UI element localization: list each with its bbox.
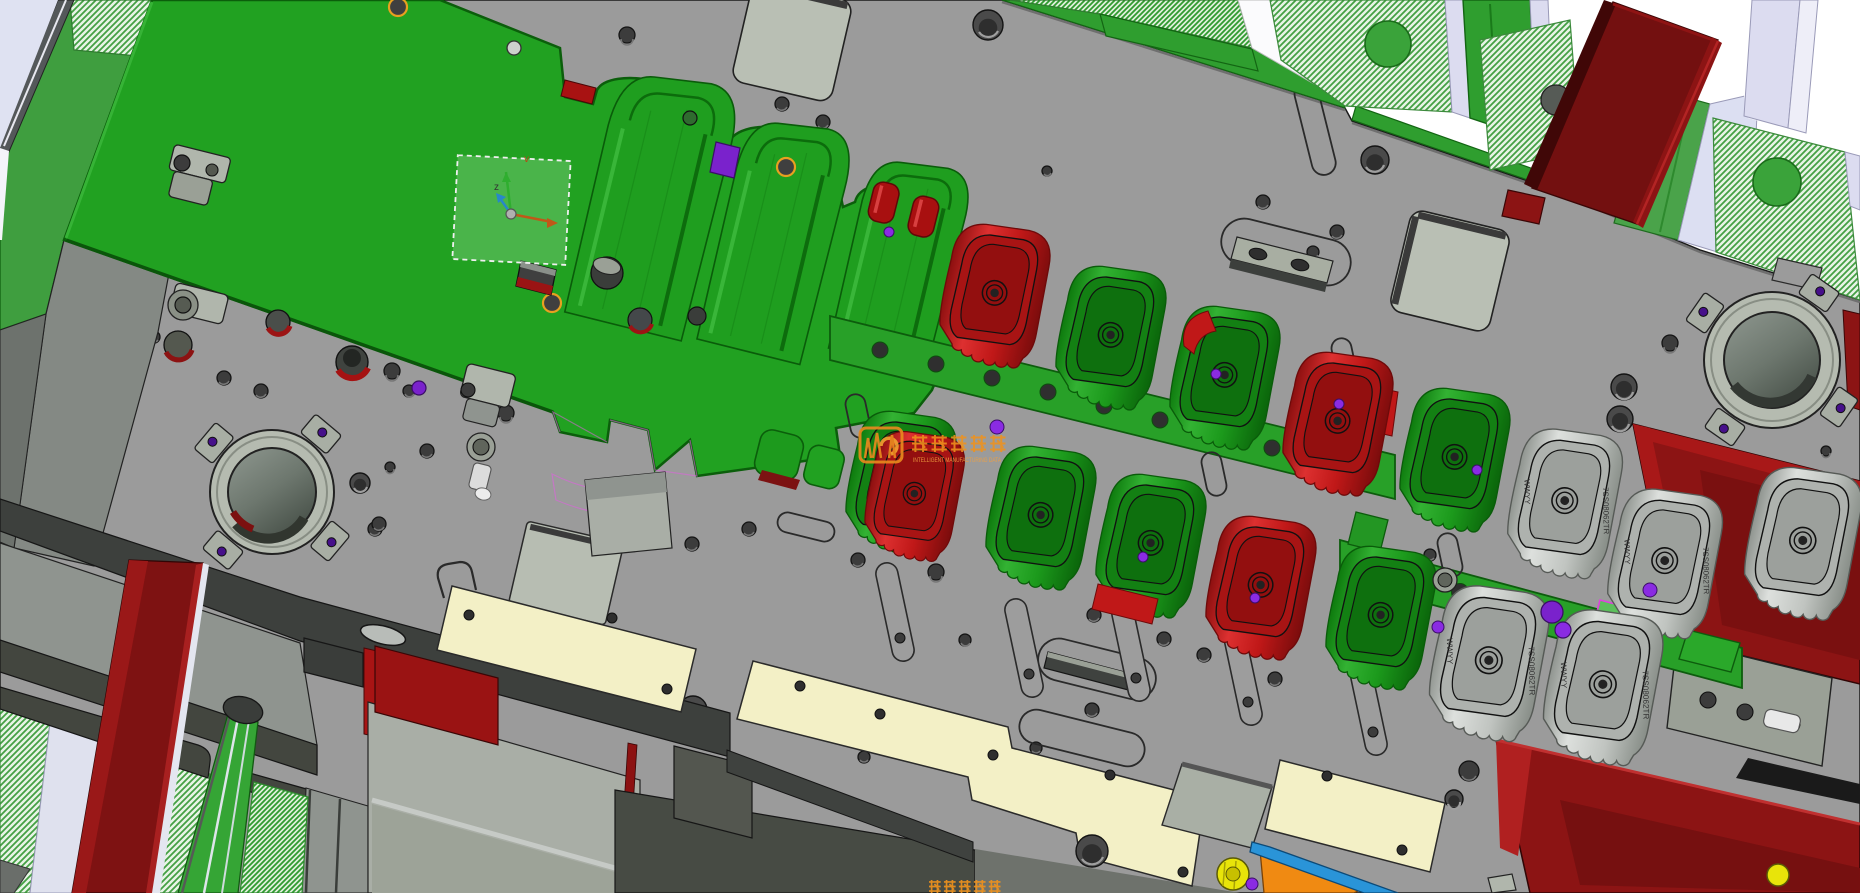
svg-text:WWYY: WWYY: [1622, 539, 1631, 565]
svg-text:WWYY: WWYY: [1559, 662, 1568, 689]
svg-text:7SS08062TR: 7SS08062TR: [1641, 670, 1651, 719]
svg-text:7SS08062TR: 7SS08062TR: [1701, 547, 1711, 594]
svg-text:v: v: [524, 154, 529, 165]
svg-text:INTELLIGENT MANUFACTURING DATA: INTELLIGENT MANUFACTURING DATA: [913, 458, 1001, 464]
svg-text:7SS08062TR: 7SS08062TR: [1601, 487, 1611, 534]
svg-text:7SS08062TR: 7SS08062TR: [1527, 646, 1537, 695]
svg-text:WWYY: WWYY: [1522, 479, 1531, 505]
svg-text:WWYY: WWYY: [1445, 638, 1454, 665]
svg-text:z: z: [494, 182, 499, 193]
